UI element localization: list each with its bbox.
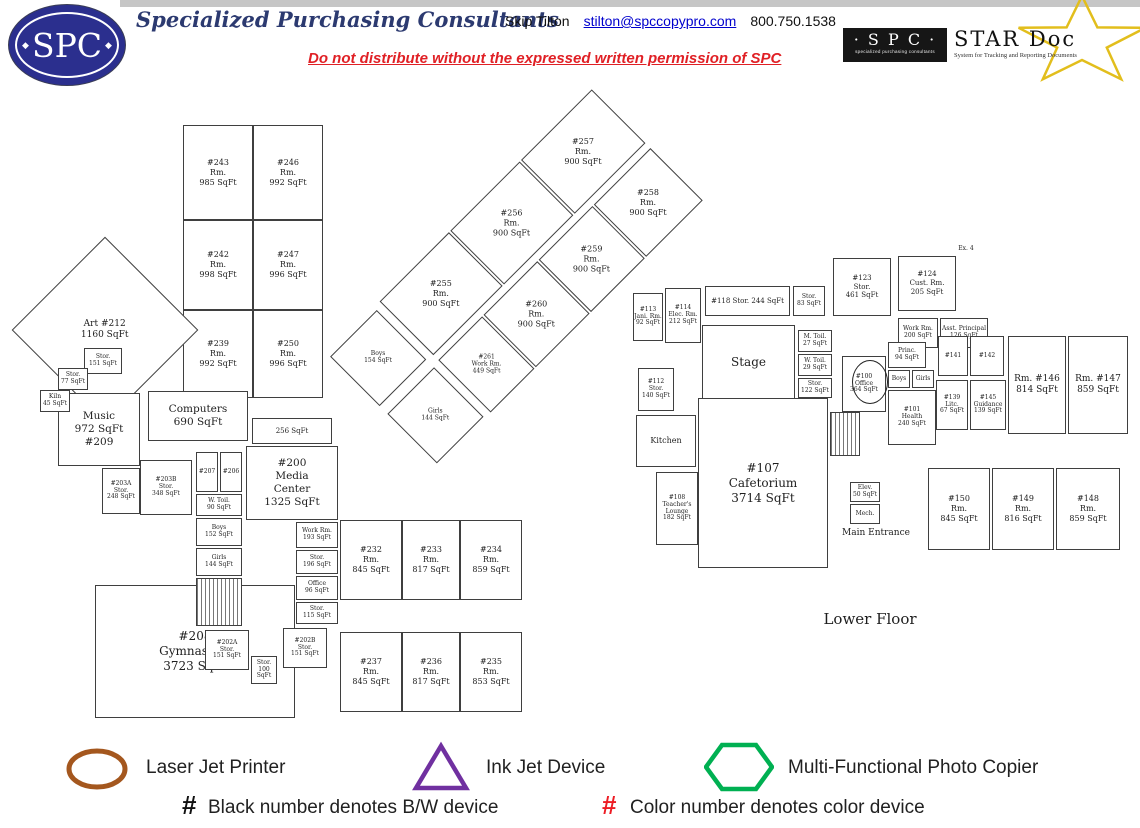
- room-r150: #150 Rm. 845 SqFt: [928, 468, 990, 550]
- room-princ: Princ. 94 SqFt: [888, 342, 926, 368]
- room-girlsR: Girls: [912, 370, 934, 388]
- room-r239: #239 Rm. 992 SqFt: [183, 310, 253, 398]
- room-r202a: #202A Stor. 151 SqFt: [205, 630, 249, 670]
- room-r124: #124 Cust. Rm. 205 SqFt: [898, 256, 956, 311]
- stairs: [830, 412, 860, 456]
- room-r235: #235 Rm. 853 SqFt: [460, 632, 522, 712]
- room-caf: #107 Cafetorium 3714 SqFt: [698, 398, 828, 568]
- room-boysR: Boys: [888, 370, 910, 388]
- room-office96: Office 96 SqFt: [296, 576, 338, 600]
- room-elev: Elev. 50 SqFt: [850, 482, 880, 502]
- room-stor196: Stor. 196 SqFt: [296, 550, 338, 574]
- room-r145: #145 Guidance 139 SqFt: [970, 380, 1006, 430]
- room-mainent: Main Entrance: [830, 526, 922, 542]
- room-lowerfloor: Lower Floor: [795, 606, 945, 632]
- stairs: [196, 578, 242, 626]
- room-girls144: Girls 144 SqFt: [196, 548, 242, 576]
- room-r149: #149 Rm. 816 SqFt: [992, 468, 1054, 550]
- legend-bw-note: Black number denotes B/W device: [208, 797, 498, 819]
- room-r237: #237 Rm. 845 SqFt: [340, 632, 402, 712]
- room-r203a: #203A Stor. 248 SqFt: [102, 468, 140, 514]
- room-r108: #108 Teacher's Lounge 182 SqFt: [656, 472, 698, 545]
- room-r236: #236 Rm. 817 SqFt: [402, 632, 460, 712]
- room-kiln: Kiln 45 SqFt: [40, 390, 70, 412]
- room-r234: #234 Rm. 859 SqFt: [460, 520, 522, 600]
- room-wtoil29: W. Toil. 29 SqFt: [798, 354, 832, 376]
- room-ex4: Ex. 4: [952, 243, 980, 255]
- room-work193: Work Rm. 193 SqFt: [296, 522, 338, 548]
- room-r112: #112 Stor. 140 SqFt: [638, 368, 674, 411]
- diagonal-wing: Boys 154 SqFtGirls 144 SqFt#255 Rm. 900 …: [323, 87, 707, 471]
- laser-printer-symbol: [852, 360, 888, 404]
- room-r250: #250 Rm. 996 SqFt: [253, 310, 323, 398]
- room-r207: #207: [196, 452, 218, 492]
- page: ◆ SPC ◆ Specialized Purchasing Consultan…: [0, 0, 1140, 828]
- room-r256sq: 256 SqFt: [252, 418, 332, 444]
- legend-color-note: Color number denotes color device: [630, 797, 925, 819]
- room-mtoil: M. Toil. 27 SqFt: [798, 330, 832, 352]
- room-stor100: Stor. 100 SqFt: [251, 656, 277, 684]
- room-computers: Computers 690 SqFt: [148, 391, 248, 441]
- room-r101: #101 Health 240 SqFt: [888, 390, 936, 445]
- room-r246: #246 Rm. 992 SqFt: [253, 125, 323, 220]
- room-r148: #148 Rm. 859 SqFt: [1056, 468, 1120, 550]
- legend-ink-jet-label: Ink Jet Device: [486, 757, 605, 779]
- room-stage: Stage: [702, 325, 795, 400]
- legend-photocopier-label: Multi-Functional Photo Copier: [788, 757, 1038, 779]
- room-music: Music 972 SqFt #209: [58, 393, 140, 466]
- ink-jet-triangle-icon: [412, 741, 470, 793]
- room-stor122: Stor. 122 SqFt: [798, 378, 832, 398]
- room-stor151: Stor. 151 SqFt: [84, 348, 122, 374]
- room-r206: #206: [220, 452, 242, 492]
- room-mech: Mech.: [850, 504, 880, 524]
- room-wtoil90: W. Toil. 90 SqFt: [196, 494, 242, 516]
- room-r203b: #203B Stor. 348 SqFt: [140, 460, 192, 515]
- photocopier-hexagon-icon: [704, 742, 774, 792]
- room-r202b: #202B Stor. 151 SqFt: [283, 628, 327, 668]
- legend-laser-jet-label: Laser Jet Printer: [146, 757, 285, 779]
- room-stor115: Stor. 115 SqFt: [296, 602, 338, 624]
- floor-plan: Boys 154 SqFtGirls 144 SqFt#255 Rm. 900 …: [0, 0, 1140, 828]
- room-r113: #113 Jani. Rm. 92 SqFt: [633, 293, 663, 341]
- room-r146: Rm. #146 814 SqFt: [1008, 336, 1066, 434]
- room-r247: #247 Rm. 996 SqFt: [253, 220, 323, 310]
- room-r118: #118 Stor. 244 SqFt: [705, 286, 790, 316]
- room-r242: #242 Rm. 998 SqFt: [183, 220, 253, 310]
- room-boys152: Boys 152 SqFt: [196, 518, 242, 546]
- room-stor83: Stor. 83 SqFt: [793, 286, 825, 316]
- room-media: #200 Media Center 1325 SqFt: [246, 446, 338, 520]
- room-r232: #232 Rm. 845 SqFt: [340, 520, 402, 600]
- room-r114: #114 Elec. Rm. 212 SqFt: [665, 288, 701, 343]
- room-r243: #243 Rm. 985 SqFt: [183, 125, 253, 220]
- room-stor77: Stor. 77 SqFt: [58, 368, 88, 390]
- room-r142: #142: [970, 336, 1004, 376]
- hash-red: #: [602, 792, 616, 818]
- hash-black: #: [182, 792, 196, 818]
- room-r123: #123 Stor. 461 SqFt: [833, 258, 891, 316]
- room-gym: #208 Gymnasium 3723 SqFt: [95, 585, 295, 718]
- room-r233: #233 Rm. 817 SqFt: [402, 520, 460, 600]
- laser-jet-ellipse-icon: [64, 746, 130, 792]
- room-r139: #139 Litc. 67 SqFt: [936, 380, 968, 430]
- room-kitchen: Kitchen: [636, 415, 696, 467]
- room-r147: Rm. #147 859 SqFt: [1068, 336, 1128, 434]
- room-r141: #141: [938, 336, 968, 376]
